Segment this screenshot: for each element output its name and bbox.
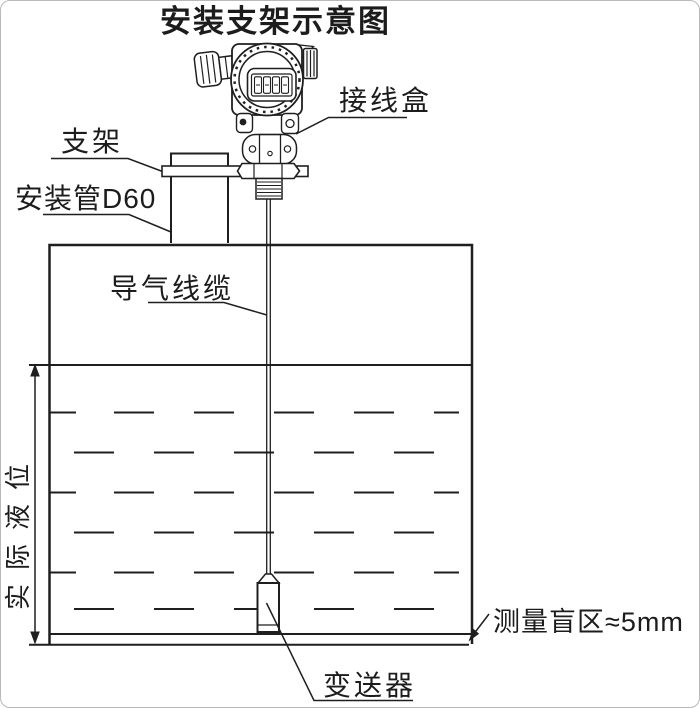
blind-zone-arrow-icon [469, 629, 480, 642]
schematic-page: 实际液位 接线盒 支架 安装管D60 导气线缆 测量盲区≈5mm 变送器 安装支… [0, 0, 700, 708]
level-dimension: 实际液位 [3, 364, 40, 645]
transmitter-label: 变送器 [323, 670, 416, 701]
mounting-pipe-leader [43, 215, 171, 233]
blind-zone-label: 测量盲区≈5mm [493, 607, 684, 637]
air-cable-callout: 导气线缆 [110, 273, 267, 315]
transmitter-callout: 变送器 [267, 603, 417, 701]
mounting-pipe-label: 安装管D60 [15, 183, 156, 214]
blind-zone-callout: 测量盲区≈5mm [469, 607, 684, 642]
threaded-stud [256, 179, 282, 200]
bracket-label: 支架 [61, 126, 123, 157]
process-flange [243, 135, 297, 165]
guide-cable [267, 199, 271, 575]
actual-level-label: 实际液位 [3, 450, 33, 610]
cable-gland-icon [194, 49, 235, 87]
arrow-down-icon [30, 632, 40, 645]
junction-box-leader [296, 118, 407, 135]
air-cable-label: 导气线缆 [110, 273, 234, 304]
junction-box-callout: 接线盒 [296, 85, 432, 134]
air-cable-leader [148, 303, 267, 316]
bracket-callout: 支架 [51, 126, 163, 172]
liquid-dashes [49, 413, 459, 610]
side-flange-icon [304, 49, 318, 79]
housing-ears [237, 114, 299, 134]
bolt-dot-icon [240, 119, 247, 126]
lcd-display-icon [248, 69, 297, 102]
installation-bracket-diagram: 实际液位 接线盒 支架 安装管D60 导气线缆 测量盲区≈5mm 变送器 安装支… [1, 1, 700, 708]
bracket-leader [51, 159, 163, 172]
junction-box-label: 接线盒 [339, 85, 432, 116]
tank [29, 245, 472, 645]
page-title: 安装支架示意图 [160, 4, 391, 39]
hex-nut [238, 164, 300, 179]
mounting-pipe-callout: 安装管D60 [15, 183, 171, 232]
